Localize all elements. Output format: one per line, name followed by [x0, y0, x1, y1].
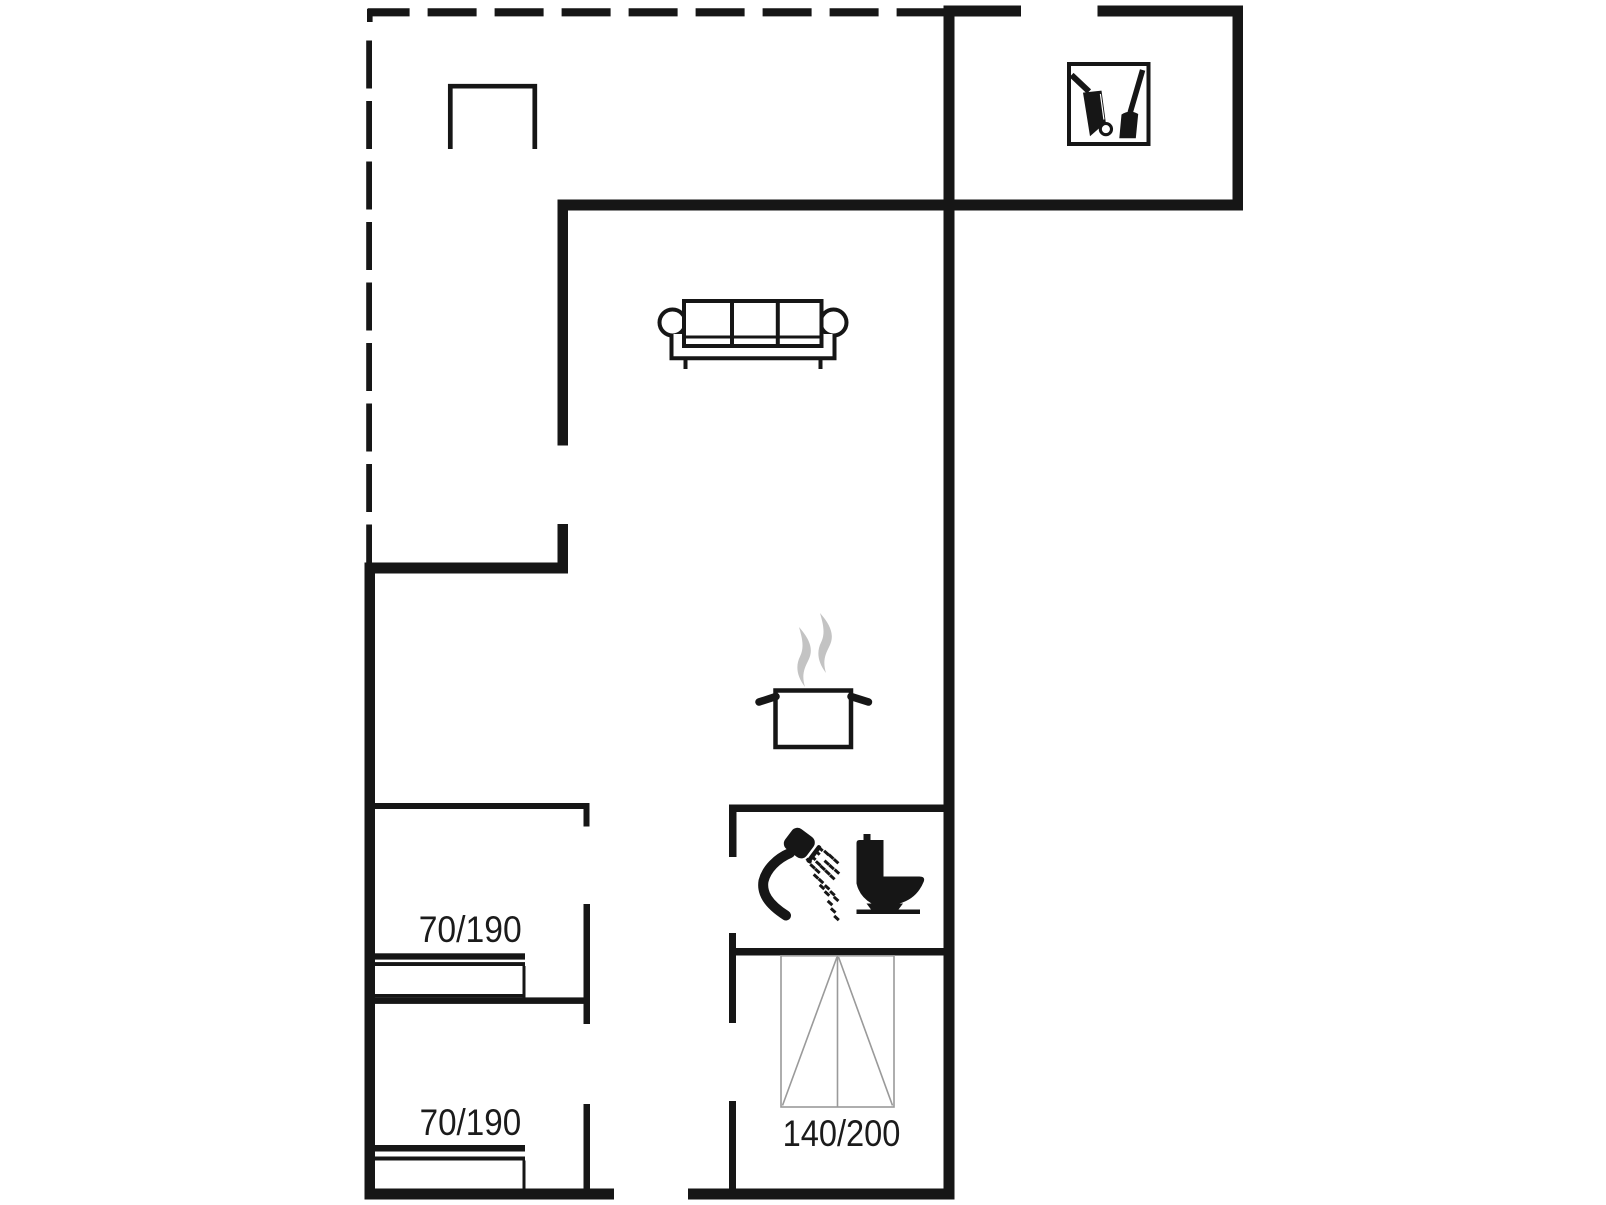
svg-text:70/190: 70/190 [420, 1101, 522, 1143]
svg-text:140/200: 140/200 [783, 1112, 901, 1154]
svg-text:70/190: 70/190 [419, 908, 522, 950]
